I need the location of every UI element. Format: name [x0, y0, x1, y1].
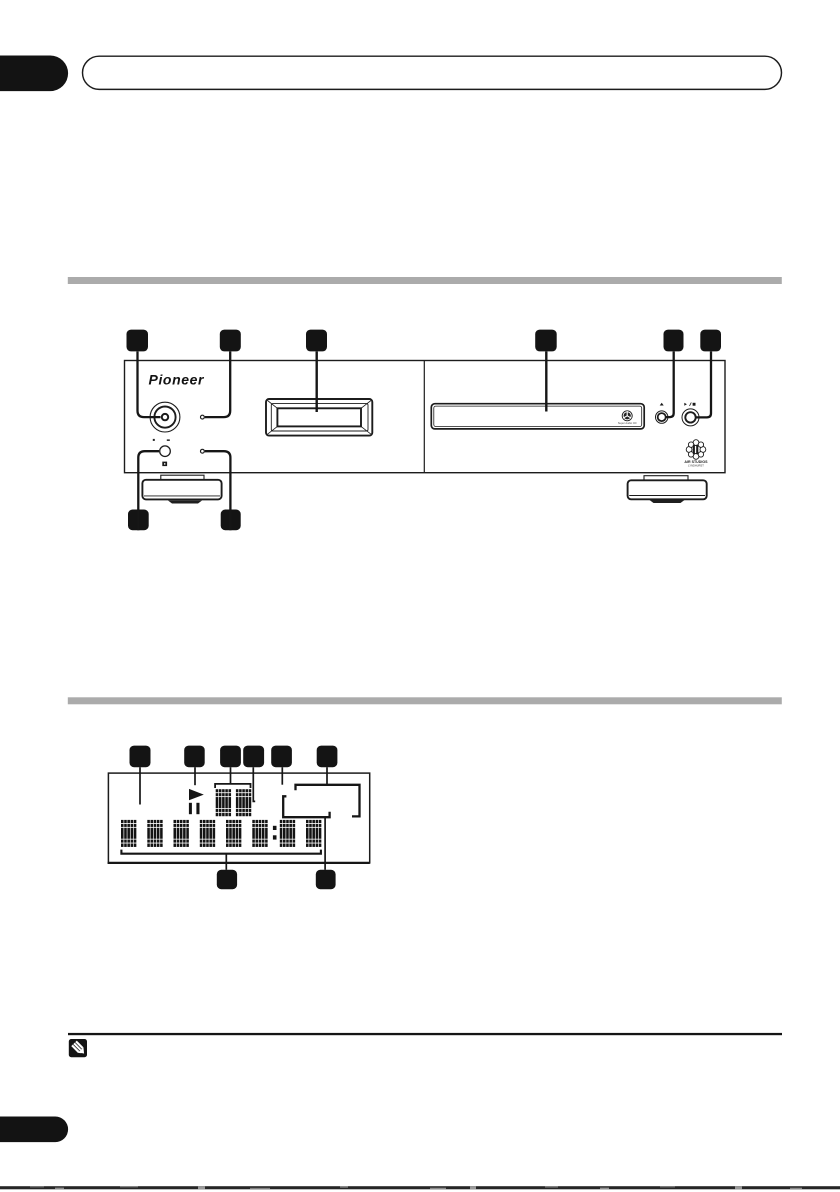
svg-text:AIR STUDIOS: AIR STUDIOS — [684, 460, 708, 464]
svg-text:Pioneer: Pioneer — [149, 371, 206, 387]
svg-text:LYNDHURST: LYNDHURST — [688, 463, 704, 467]
svg-text:Super Audio CD: Super Audio CD — [618, 421, 637, 425]
